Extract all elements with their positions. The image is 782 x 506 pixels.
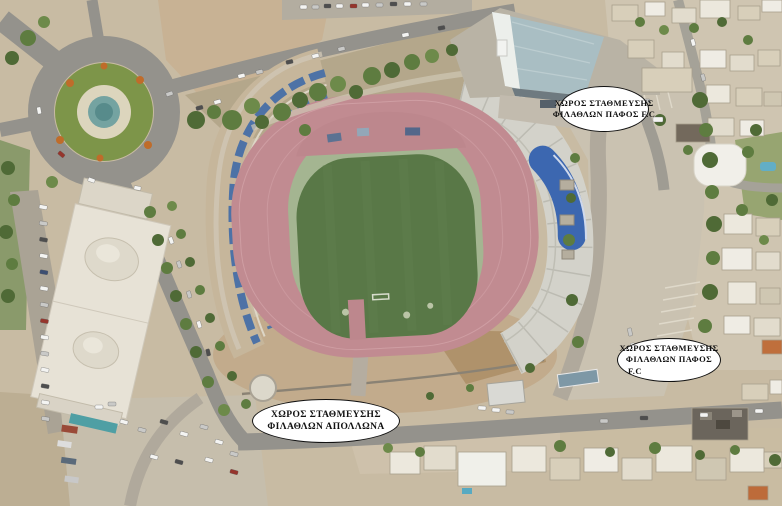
annotation-line: ΦΙΛΑΘΛΩΝ ΑΠΟΛΛΩΝΑ	[267, 421, 384, 433]
canopy-booth	[487, 380, 525, 406]
annotation-line: ΧΩΡΟΣ ΣΤΑΘΜΕΥΣΗΣ	[619, 343, 718, 354]
aerial-screenshot: ΧΩΡΟΣ ΣΤΑΘΜΕΥΣΗΣ ΦΙΛΑΘΛΩΝ ΠΑΦΟΣ F.C ΧΩΡΟ…	[0, 0, 782, 506]
roundabout	[55, 63, 153, 162]
annotation-line: ΦΙΛΑΘΛΩΝ ΠΑΦΟΣ F.C	[553, 109, 656, 120]
annotation-parking-pafos-fc-north: ΧΩΡΟΣ ΣΤΑΘΜΕΥΣΗΣ ΦΙΛΑΘΛΩΝ ΠΑΦΟΣ F.C	[559, 86, 649, 132]
annotation-parking-apollona: ΧΩΡΟΣ ΣΤΑΘΜΕΥΣΗΣ ΦΙΛΑΘΛΩΝ ΑΠΟΛΛΩΝΑ	[252, 399, 400, 443]
annotation-line: ΦΙΛΑΘΛΩΝ ΠΑΦΟΣ	[626, 354, 712, 365]
annotation-line: F.C	[628, 366, 642, 377]
grass-pitch	[293, 151, 480, 341]
annotation-parking-pafos-fc-east: ΧΩΡΟΣ ΣΤΑΘΜΕΥΣΗΣ ΦΙΛΑΘΛΩΝ ΠΑΦΟΣ F.C	[617, 338, 721, 382]
annotation-line: ΧΩΡΟΣ ΣΤΑΘΜΕΥΣΗΣ	[554, 98, 653, 109]
round-building	[250, 375, 276, 401]
pool	[760, 162, 776, 171]
curved-white-building	[694, 144, 746, 186]
annotation-line: ΧΩΡΟΣ ΣΤΑΘΜΕΥΣΗΣ	[271, 409, 381, 421]
white-villa	[458, 452, 506, 486]
